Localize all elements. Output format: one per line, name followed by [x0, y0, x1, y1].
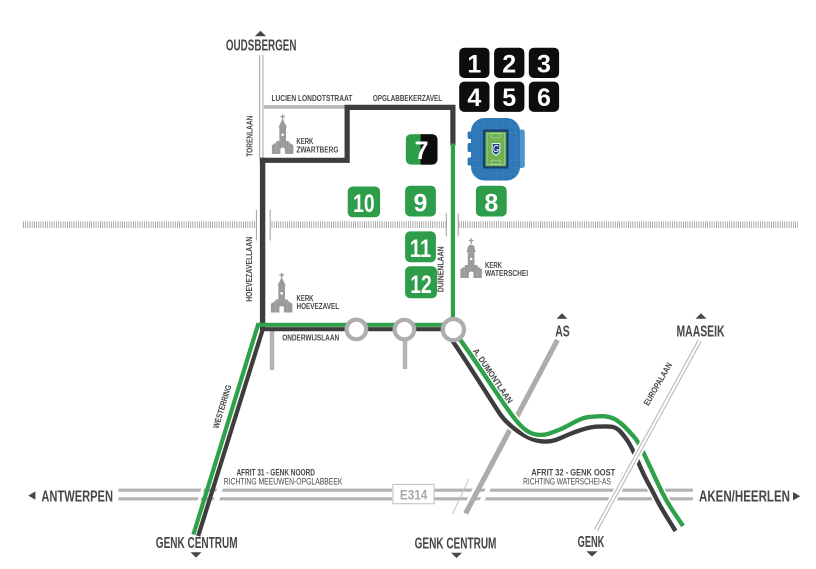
svg-text:AKEN/HEERLEN: AKEN/HEERLEN	[699, 489, 790, 506]
svg-text:GENK CENTRUM: GENK CENTRUM	[156, 535, 238, 552]
svg-text:DUINENLAAN: DUINENLAAN	[436, 246, 446, 292]
svg-text:3: 3	[537, 50, 551, 78]
svg-text:7: 7	[415, 137, 429, 165]
svg-text:8: 8	[484, 189, 498, 217]
svg-text:AS: AS	[555, 323, 570, 340]
svg-text:4: 4	[467, 84, 481, 112]
svg-text:RICHTING MEEUWEN-OPGLABBEEK: RICHTING MEEUWEN-OPGLABBEEK	[224, 477, 343, 487]
svg-text:GENK: GENK	[578, 534, 605, 551]
svg-text:12: 12	[410, 271, 432, 299]
svg-text:11: 11	[410, 235, 432, 263]
svg-text:1: 1	[467, 50, 481, 78]
svg-text:9: 9	[414, 189, 428, 217]
svg-text:HOEVEZAVELLAAN: HOEVEZAVELLAAN	[244, 237, 254, 302]
svg-text:TORENLAAN: TORENLAAN	[244, 116, 254, 157]
svg-text:WATERSCHEI: WATERSCHEI	[485, 268, 528, 278]
svg-text:E314: E314	[400, 486, 428, 502]
svg-text:ANTWERPEN: ANTWERPEN	[41, 489, 113, 506]
svg-text:HOEVEZAVEL: HOEVEZAVEL	[297, 301, 340, 311]
svg-text:MAASEIK: MAASEIK	[677, 323, 725, 340]
svg-text:OPGLABBEKERZAVEL: OPGLABBEKERZAVEL	[373, 93, 442, 103]
svg-text:LUCIEN LONDOTSTRAAT: LUCIEN LONDOTSTRAAT	[271, 93, 352, 103]
svg-text:10: 10	[353, 190, 375, 218]
svg-text:5: 5	[502, 84, 516, 112]
svg-text:6: 6	[537, 84, 551, 112]
svg-text:ZWARTBERG: ZWARTBERG	[296, 145, 338, 155]
svg-text:RICHTING WATERSCHEI-AS: RICHTING WATERSCHEI-AS	[523, 477, 611, 487]
svg-text:GENK CENTRUM: GENK CENTRUM	[415, 536, 497, 553]
svg-text:OUDSBERGEN: OUDSBERGEN	[226, 38, 297, 55]
svg-text:2: 2	[502, 50, 516, 78]
svg-text:ONDERWIJSLAAN: ONDERWIJSLAAN	[282, 333, 339, 343]
